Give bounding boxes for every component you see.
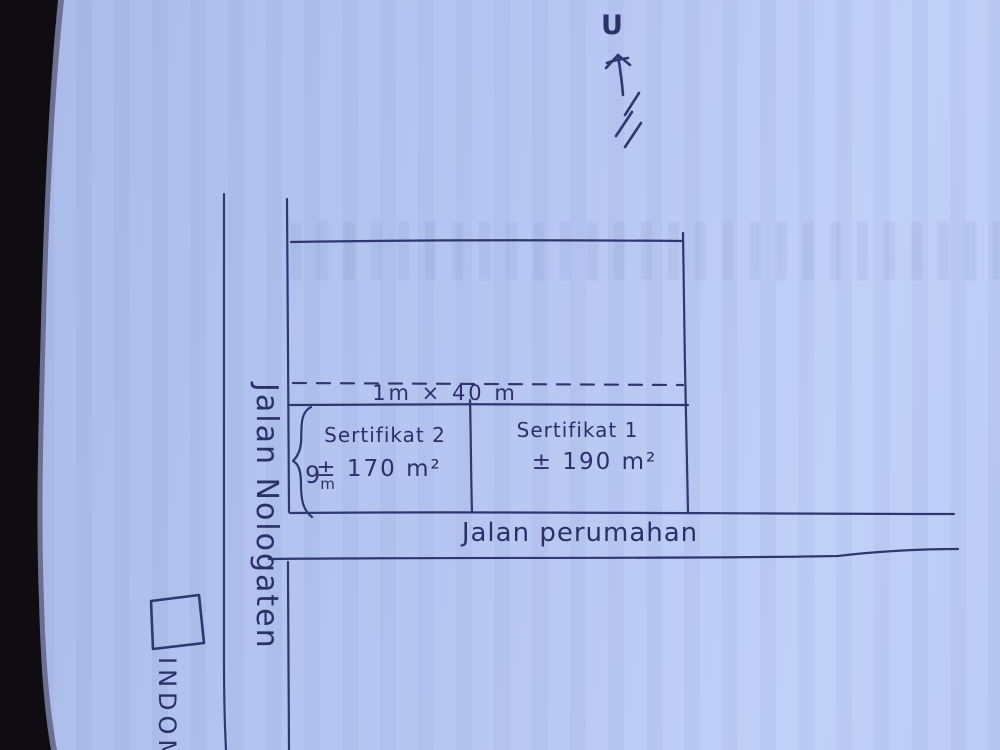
road-nologaten-east-line: [287, 199, 289, 512]
plot-left-name: Sertifikat 2: [315, 423, 455, 447]
south-block-west-line: [288, 562, 289, 750]
parcel-right-line: [683, 233, 688, 512]
road-perumahan-north-line: [290, 512, 954, 514]
strip-dimension-label: 1m × 40 m: [355, 381, 535, 405]
photo-dark-edge: [0, 0, 58, 750]
north-label: U: [601, 10, 623, 41]
landmark-square: [151, 595, 204, 649]
parcel-top-line: [291, 240, 683, 242]
hatch-mark-3: [625, 123, 641, 147]
depth-value: 9: [305, 461, 320, 489]
photo-of-hand-drawn-site-plan: U 1m × 40 m Sertifikat 2 ± 170 m² Sertif…: [0, 0, 1000, 750]
north-arrow-shaft: [618, 56, 623, 95]
sketch-linework: [0, 0, 1000, 750]
road-perumahan-south-line: [269, 549, 958, 559]
road-perumahan-label: Jalan perumahan: [425, 518, 735, 548]
depth-label: 9m: [305, 461, 335, 493]
road-nologaten-label: Jalan Nologaten: [249, 383, 284, 650]
road-nologaten-west-line: [224, 194, 226, 750]
plot-right-name: Sertifikat 1: [505, 418, 650, 442]
plot-divider-line: [470, 400, 472, 512]
landmark-label: INDOM: [153, 657, 181, 750]
plot-right-area: ± 190 m²: [527, 449, 662, 475]
north-arrow-icon: [606, 55, 641, 147]
depth-unit: m: [320, 475, 335, 493]
